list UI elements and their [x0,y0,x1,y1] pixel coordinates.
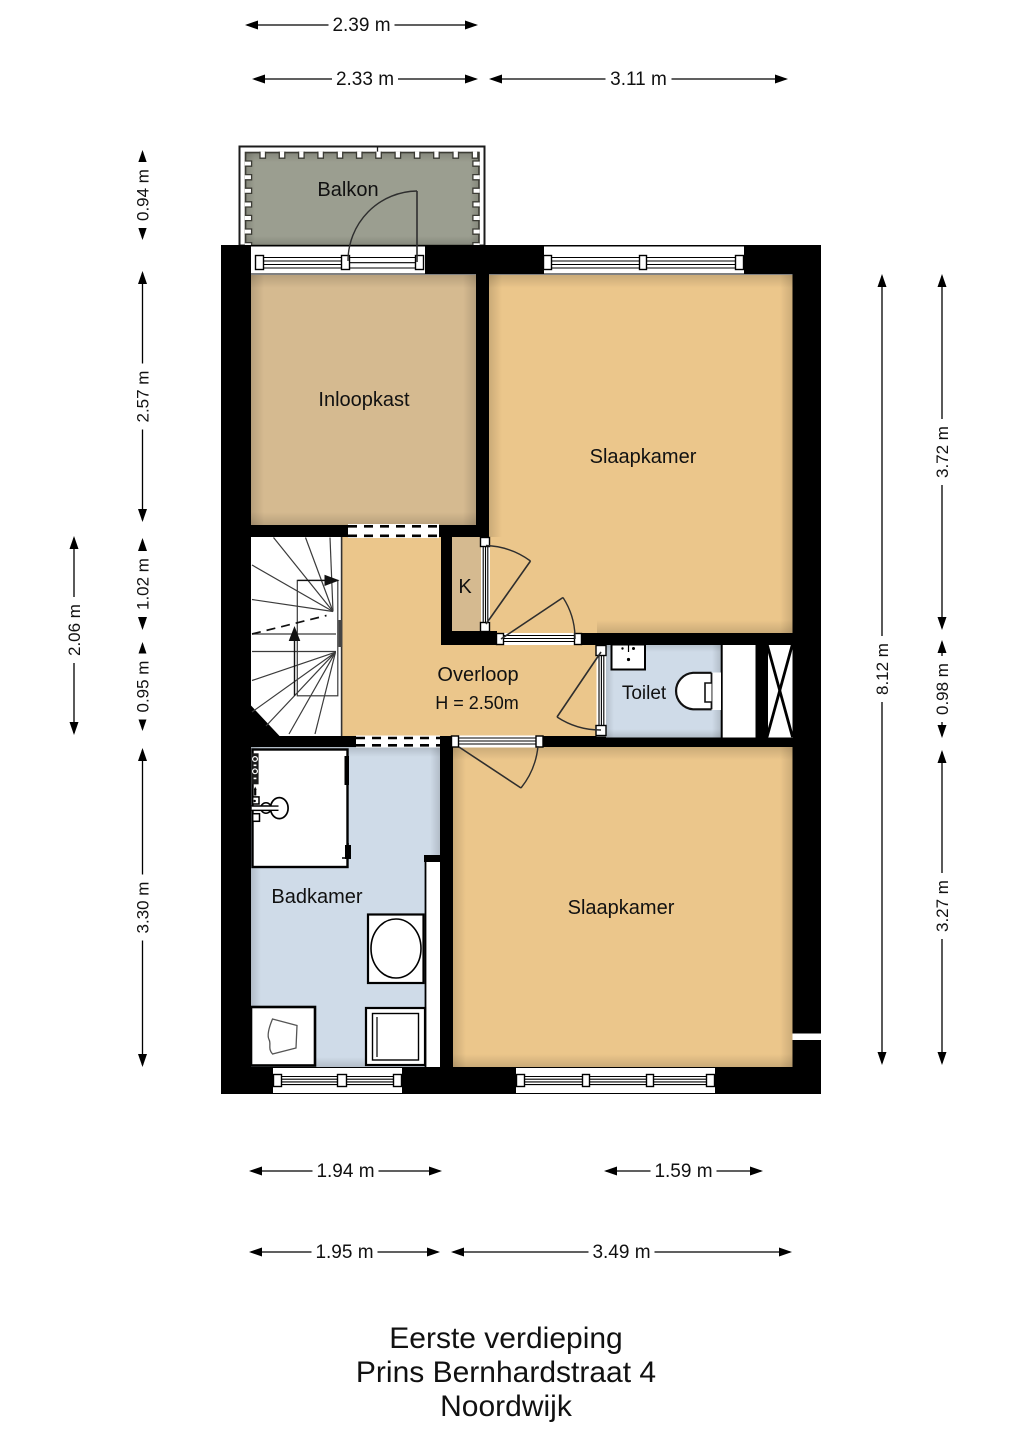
svg-text:Slaapkamer: Slaapkamer [590,446,697,468]
svg-text:2.06 m: 2.06 m [65,604,84,656]
svg-text:3.72 m: 3.72 m [933,426,952,478]
svg-text:Eerste verdieping: Eerste verdieping [389,1322,622,1355]
svg-text:3.49 m: 3.49 m [592,1242,650,1263]
svg-text:2.33 m: 2.33 m [336,69,394,90]
svg-text:Balkon: Balkon [317,179,378,201]
svg-text:1.95 m: 1.95 m [315,1242,373,1263]
svg-text:1.02 m: 1.02 m [134,558,153,610]
svg-text:Noordwijk: Noordwijk [440,1390,573,1423]
svg-text:3.27 m: 3.27 m [933,880,952,932]
svg-text:3.30 m: 3.30 m [134,882,153,934]
svg-text:Overloop: Overloop [437,664,518,686]
svg-text:2.39 m: 2.39 m [332,15,390,36]
svg-text:Slaapkamer: Slaapkamer [568,897,675,919]
svg-text:K: K [458,576,472,598]
svg-text:0.95 m: 0.95 m [134,661,153,713]
svg-text:2.57 m: 2.57 m [134,371,153,423]
svg-text:1.59 m: 1.59 m [654,1161,712,1182]
svg-text:H = 2.50m: H = 2.50m [435,693,519,713]
svg-text:0.94 m: 0.94 m [134,169,153,221]
svg-text:Prins Bernhardstraat 4: Prins Bernhardstraat 4 [356,1356,656,1389]
svg-text:0.98 m: 0.98 m [933,663,952,715]
svg-text:3.11 m: 3.11 m [610,69,667,90]
svg-text:Badkamer: Badkamer [271,886,362,908]
svg-text:8.12 m: 8.12 m [873,643,892,695]
svg-text:1.94 m: 1.94 m [316,1161,374,1182]
svg-text:Toilet: Toilet [622,683,667,704]
svg-text:Inloopkast: Inloopkast [318,389,410,411]
